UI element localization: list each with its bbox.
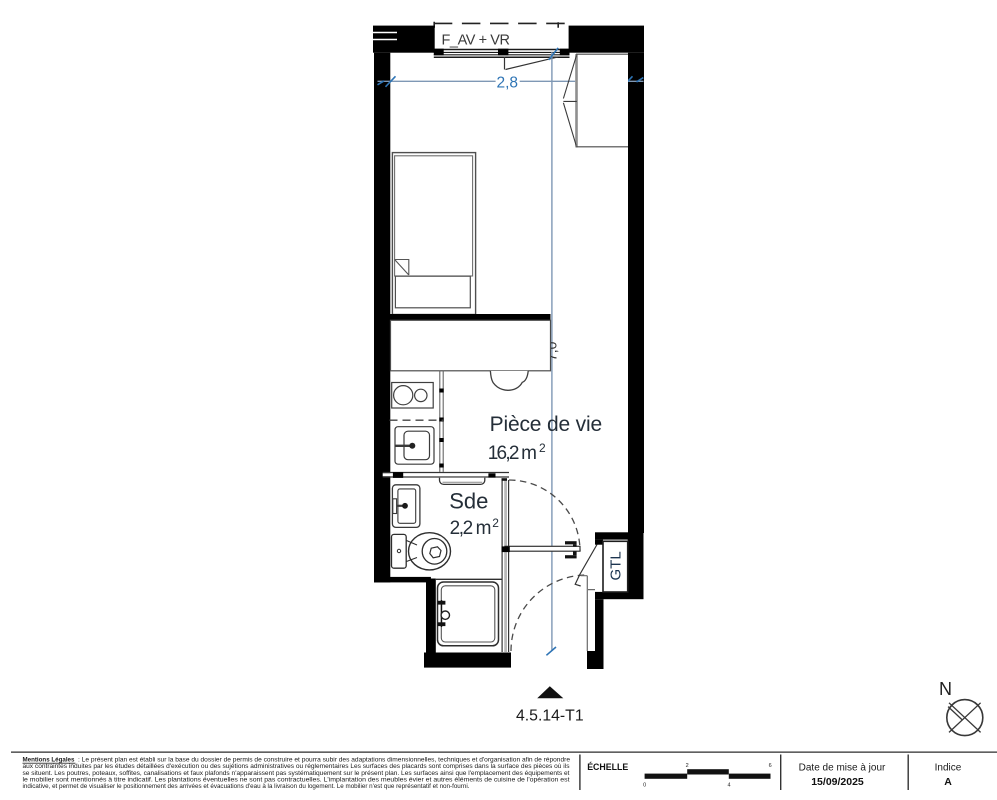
svg-text:Pièce de vie: Pièce de vie (490, 413, 603, 436)
svg-text:0: 0 (643, 783, 646, 789)
svg-text:2,8: 2,8 (497, 75, 519, 92)
svg-text:ÉCHELLE: ÉCHELLE (587, 762, 628, 772)
svg-text:Date de mise à jour: Date de mise à jour (799, 762, 886, 773)
svg-text:Sde: Sde (449, 489, 488, 514)
svg-text:4.5.14-T1: 4.5.14-T1 (516, 708, 584, 725)
svg-text:2: 2 (492, 516, 499, 530)
svg-text:N: N (939, 679, 952, 699)
svg-text:16,2 m: 16,2 m (488, 443, 537, 464)
svg-text:2: 2 (686, 763, 689, 769)
svg-text:GTL: GTL (608, 551, 625, 580)
svg-text:F_AV + VR: F_AV + VR (442, 32, 511, 48)
svg-text:4: 4 (727, 783, 730, 789)
svg-text:6: 6 (769, 763, 772, 769)
svg-text:A: A (944, 776, 952, 788)
svg-text:15/09/2025: 15/09/2025 (811, 776, 864, 788)
svg-text:2,2 m: 2,2 m (450, 518, 492, 539)
svg-text:Indice: Indice (935, 762, 962, 773)
svg-text:indicative, et permet de visua: indicative, et permet de visualiser le p… (23, 783, 470, 790)
svg-text:2: 2 (539, 441, 546, 455)
